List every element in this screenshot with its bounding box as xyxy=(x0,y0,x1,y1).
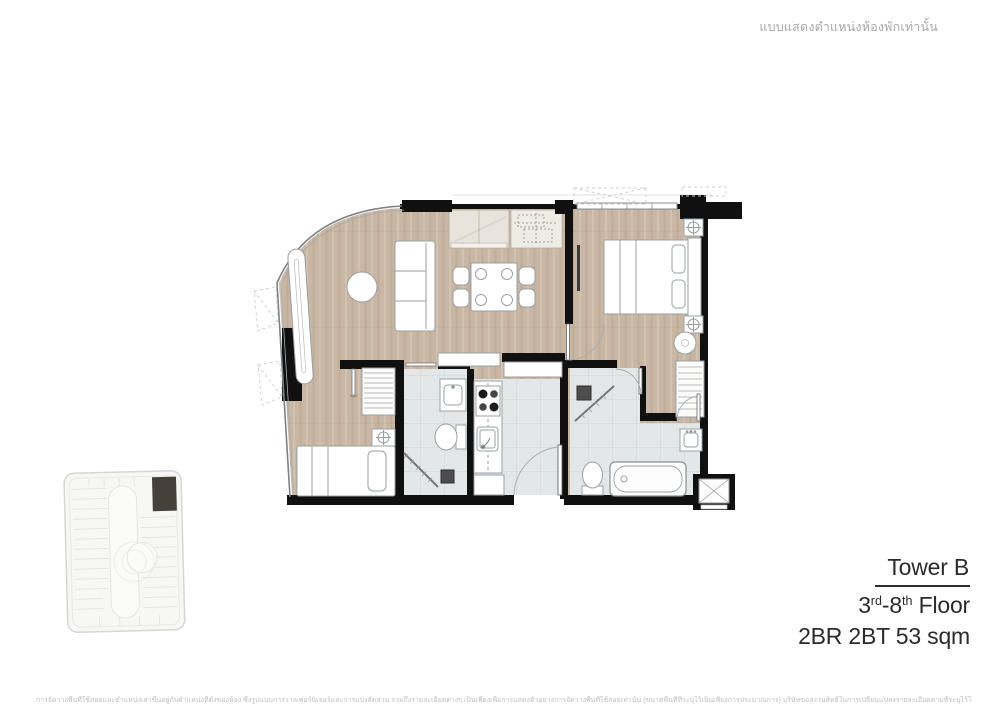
bar-counter xyxy=(438,353,500,366)
tower-name: Tower B xyxy=(875,554,970,587)
nightstand-lamp-top xyxy=(684,219,703,236)
key-plan-drawing xyxy=(56,464,195,645)
bedroom2-wardrobe xyxy=(362,368,395,415)
unit-spec: 2BR 2BT 53 sqm xyxy=(798,623,970,650)
floor-plan-drawing xyxy=(252,183,752,533)
kitchen-sink xyxy=(477,427,498,451)
key-plan xyxy=(56,464,195,645)
floor-plan xyxy=(252,183,752,533)
kitchen-stove xyxy=(476,386,500,416)
bathroom1-vanity xyxy=(440,379,466,411)
foyer-cabinet xyxy=(504,362,562,377)
builtin-wardrobe-top xyxy=(449,210,509,248)
sofa xyxy=(395,241,435,331)
bedroom2-nightstand-lamp xyxy=(372,429,395,446)
ac-unit-closet xyxy=(511,210,562,248)
keyplan-highlighted-unit xyxy=(152,477,177,512)
kitchen-cabinet xyxy=(474,475,504,495)
bedroom-window-band xyxy=(577,203,677,209)
unit-info-block: Tower B 3rd-8th Floor 2BR 2BT 53 sqm xyxy=(798,554,970,650)
bathroom1-sliding-door xyxy=(406,363,436,366)
disclaimer-text: การจัดวางพื้นที่ใช้สอยและตำแหน่งเสาขึ้นอ… xyxy=(36,696,972,706)
bathroom1-toilet xyxy=(435,424,466,450)
bedroom2-bed xyxy=(297,446,395,496)
ac-ledge-box xyxy=(693,474,735,510)
master-bed xyxy=(604,238,701,316)
wall-tv xyxy=(577,245,580,291)
floorplan-page: { "page": { "top_note": "แบบแสดงตำแหน่งห… xyxy=(0,0,1000,707)
master-basin xyxy=(680,429,702,451)
floor-range: 3rd-8th Floor xyxy=(798,592,970,619)
bathtub xyxy=(610,462,686,496)
coffee-table xyxy=(347,272,377,302)
round-side-table xyxy=(674,332,696,354)
master-toilet xyxy=(582,462,603,495)
nightstand-lamp-bottom xyxy=(684,316,703,333)
plan-type-note: แบบแสดงตำแหน่งห้องพักเท่านั้น xyxy=(759,17,938,37)
